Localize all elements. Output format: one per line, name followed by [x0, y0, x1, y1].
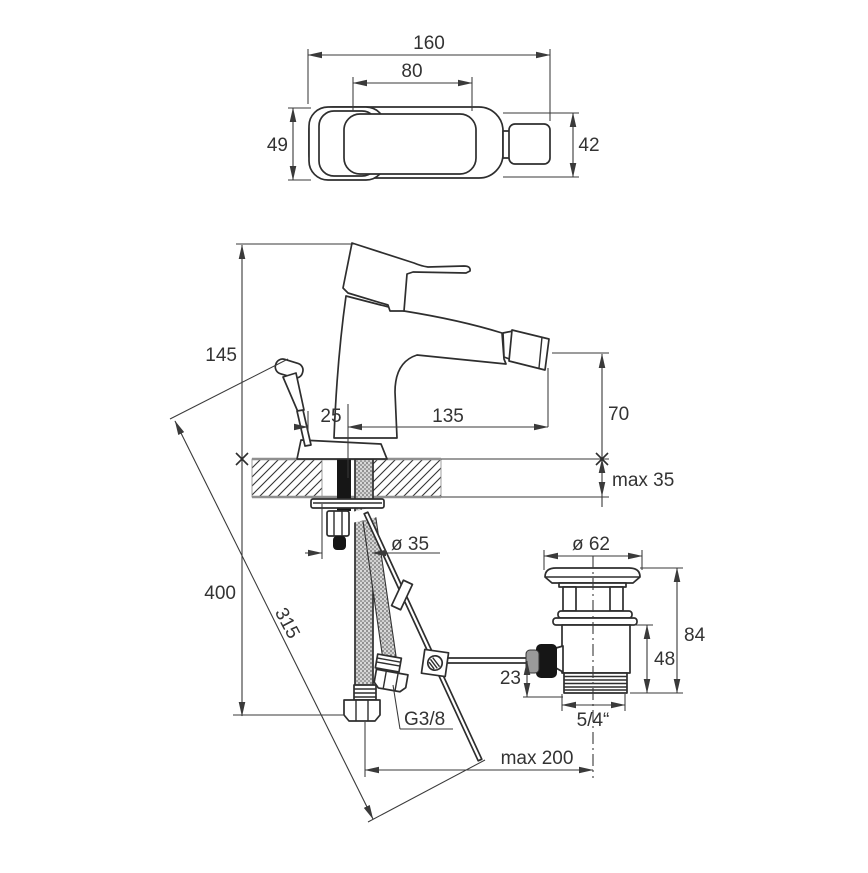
dim-end-height-label: 42 — [578, 135, 599, 156]
dim-overall-length-label: 160 — [413, 33, 445, 54]
faucet-body-spout — [334, 296, 506, 438]
pop-up-rod — [274, 357, 527, 761]
dim-outlet-height-label: 70 — [608, 404, 629, 425]
hose-nut-vertical — [344, 700, 380, 721]
dim-cap-diameter-label: ø 62 — [572, 534, 610, 555]
technical-drawing-page: 160 80 49 42 145 25 135 70 max 35 ø 35 4… — [0, 0, 868, 868]
waste-thread — [564, 673, 627, 693]
waste-body — [562, 625, 630, 673]
dim-total-height-label: 145 — [205, 345, 237, 366]
dim-hole-diameter-label: ø 35 — [391, 534, 429, 555]
hose-nut-diagonal — [373, 669, 408, 692]
horizontal-rod — [447, 658, 527, 663]
hose-collar-vertical — [354, 685, 376, 700]
dim-body-width-label: 49 — [267, 135, 288, 156]
dim-lever-length-label: 80 — [401, 61, 422, 82]
aerator — [509, 330, 549, 370]
dim-hose-drop-label: 400 — [204, 583, 236, 604]
lever-top-view — [344, 114, 476, 174]
waste-leg-left — [563, 587, 576, 611]
waste-leg-right — [610, 587, 623, 611]
dim-waste-body-height-label: 48 — [654, 649, 675, 670]
dim-rod-offset-label: 25 — [320, 406, 341, 427]
dim-rod-length-label: 315 — [270, 604, 303, 642]
dim-horizontal-reach-label: max 200 — [501, 748, 574, 769]
dim-hose-thread-label: G3/8 — [404, 709, 445, 730]
side-port-neck — [556, 646, 563, 672]
mounting-nut — [327, 511, 349, 536]
rod-clamp — [421, 649, 448, 676]
top-view-faucet — [309, 107, 550, 180]
dim-thread-size-label: 5/4“ — [577, 710, 610, 731]
dim-deck-thickness-label: max 35 — [612, 470, 674, 491]
aerator-top-view — [509, 124, 550, 164]
dim-waste-height-label: 84 — [684, 625, 706, 646]
dim-outlet-offset-label: 23 — [500, 668, 521, 689]
side-port-cap — [526, 650, 539, 673]
pop-up-waste — [526, 556, 640, 778]
stud-tip — [333, 536, 346, 550]
bidet-mixer-dimension-drawing: 160 80 49 42 145 25 135 70 max 35 ø 35 4… — [0, 0, 868, 868]
dim-spout-reach-label: 135 — [432, 406, 464, 427]
